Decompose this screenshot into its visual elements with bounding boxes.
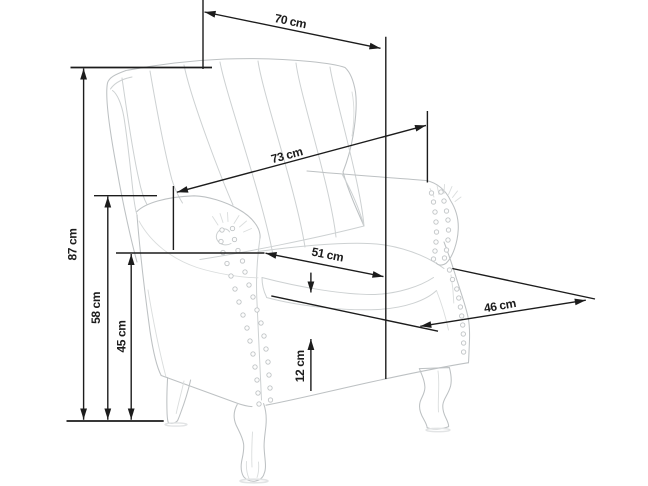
- svg-text:12 cm: 12 cm: [293, 350, 307, 382]
- svg-text:45 cm: 45 cm: [114, 320, 128, 352]
- svg-text:87 cm: 87 cm: [66, 228, 80, 260]
- svg-text:58 cm: 58 cm: [89, 292, 103, 324]
